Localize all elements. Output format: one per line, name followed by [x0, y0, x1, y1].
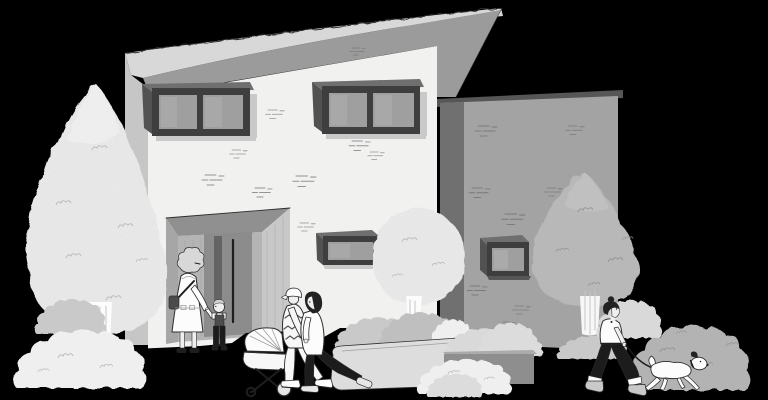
dog-body	[651, 361, 691, 378]
upper-window-left	[142, 82, 257, 141]
mother-front-sneaker	[301, 386, 319, 393]
illustration-canvas	[0, 0, 768, 400]
walker-eye	[616, 308, 617, 309]
house-illustration	[0, 0, 768, 400]
upper-window-right	[312, 79, 427, 139]
window-sill-shadow	[323, 265, 380, 269]
father-cap	[286, 288, 302, 298]
window-pane-highlight	[375, 95, 392, 125]
window-pane-highlight	[161, 97, 177, 127]
ground-floor-window	[316, 230, 380, 269]
boy-pants-leg	[214, 326, 219, 346]
mother-hand	[304, 339, 308, 343]
window-shadow-right	[250, 94, 257, 138]
boy-pants-leg	[220, 326, 225, 346]
grandmother-shoe	[177, 348, 187, 353]
annex-window-glass-highlight	[494, 250, 508, 269]
grandmother-bag	[169, 296, 179, 309]
boy-eye	[215, 306, 216, 307]
boy-overall-bib	[215, 315, 224, 326]
annex-window-sill-shadow	[487, 276, 531, 280]
window-pane-highlight	[205, 97, 222, 127]
boy-shoe	[212, 346, 219, 351]
window-shadow-bottom	[326, 134, 426, 139]
grandmother-shoe	[190, 348, 200, 353]
mother-eye	[309, 301, 310, 302]
entrance-door	[204, 232, 252, 337]
door-glass-slit	[214, 236, 222, 302]
stroller-body	[243, 352, 291, 370]
dog-nose	[706, 364, 708, 366]
window-shadow-bottom	[156, 136, 256, 141]
annex-window	[480, 235, 531, 280]
walker-hair-bun	[608, 296, 614, 302]
mother-front-leg	[305, 354, 314, 387]
father-front-leg	[284, 347, 295, 382]
dog-eye	[700, 361, 702, 363]
boy-shoe	[221, 346, 228, 351]
walker-pendant	[611, 321, 613, 323]
stroller-wheel-hub	[250, 391, 252, 393]
grandmother-leg	[180, 332, 185, 348]
window-pane-highlight	[331, 95, 347, 125]
window-shadow-right	[420, 92, 427, 136]
grandmother-leg	[192, 332, 197, 348]
window-glass-highlight	[330, 244, 350, 258]
